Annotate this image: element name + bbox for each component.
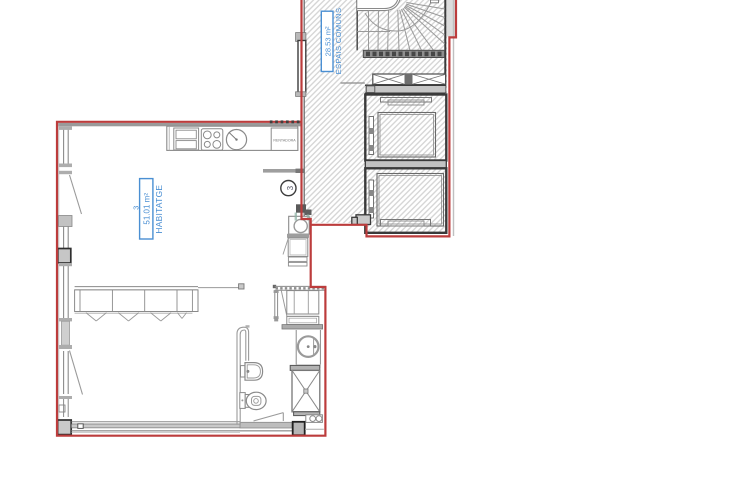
svg-text:HABITATGE: HABITATGE <box>154 185 164 234</box>
svg-text:51.01 m²: 51.01 m² <box>143 193 152 225</box>
svg-text:ESPAIS COMUNS: ESPAIS COMUNS <box>334 8 343 75</box>
svg-text:3: 3 <box>131 206 140 210</box>
svg-text:RENTADORA: RENTADORA <box>273 139 296 143</box>
svg-text:28.53 m²: 28.53 m² <box>323 26 332 56</box>
svg-text:3: 3 <box>286 185 295 190</box>
